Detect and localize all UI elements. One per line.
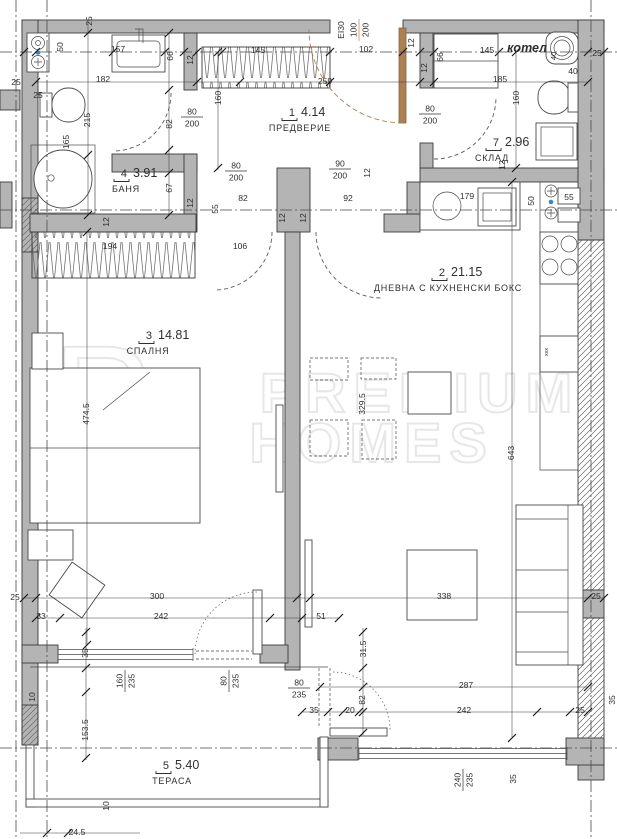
svg-text:25: 25: [10, 592, 20, 602]
svg-text:1: 1: [289, 107, 295, 119]
svg-text:12: 12: [298, 213, 308, 223]
room-label: 55.40ТЕРАСА: [152, 758, 199, 786]
door-size-label: 90200: [329, 159, 351, 181]
svg-text:242: 242: [457, 705, 472, 715]
nightstand2: [28, 530, 73, 560]
wall-partition-bedroom-living: [285, 232, 300, 670]
svg-text:235: 235: [292, 690, 307, 700]
dimension-label: 35: [607, 695, 617, 705]
dimension-label: 179: [460, 191, 475, 201]
svg-text:82: 82: [357, 695, 367, 705]
svg-text:200: 200: [229, 173, 244, 183]
storage-washer-icon: [536, 123, 577, 160]
door-size-label: 100200: [349, 19, 371, 41]
dimension-label: 66: [435, 52, 445, 62]
svg-text:20: 20: [345, 705, 355, 715]
dimension-label: 287: [459, 680, 474, 690]
svg-text:215: 215: [82, 113, 92, 128]
coffee-table: [407, 550, 477, 620]
wall-hall-south: [384, 214, 420, 232]
svg-text:300: 300: [150, 591, 165, 601]
door-size-label: 80200: [419, 104, 441, 126]
dimension-label: 182: [96, 74, 111, 84]
svg-text:92: 92: [343, 193, 353, 203]
svg-text:33: 33: [36, 611, 46, 621]
wall-bedroom-south-pier-right: [260, 645, 288, 663]
dimension-label: 92: [343, 193, 353, 203]
svg-text:106: 106: [233, 241, 248, 251]
wall-top-right: [403, 20, 604, 33]
dimension-label: 40: [568, 66, 578, 76]
door-size-label: 160235: [115, 670, 137, 692]
bedroom-wardrobe: [32, 232, 195, 278]
terrace-door-arc-bedroom: [195, 592, 257, 654]
svg-text:235: 235: [465, 773, 475, 788]
terrace-parapet-left: [26, 745, 34, 807]
dimension-label: 35: [508, 774, 518, 784]
dimension-label: 153.5: [80, 719, 90, 741]
dimension-label: 215: [82, 113, 92, 128]
svg-text:xxx: xxx: [544, 348, 550, 357]
svg-text:200: 200: [361, 23, 371, 38]
terrace-parapet-bottom: [26, 799, 328, 807]
svg-text:80: 80: [231, 161, 241, 171]
svg-text:31.5: 31.5: [358, 640, 368, 657]
svg-text:157: 157: [111, 44, 126, 54]
dimension-label: 25: [10, 592, 20, 602]
dimension-label: 102: [359, 44, 374, 54]
dimension-label: 160: [511, 91, 521, 106]
kitchen-faucet-cross-icon: [547, 187, 555, 195]
dimension-label: 24.5: [69, 827, 86, 837]
peninsula-appliance-icon: [478, 188, 516, 226]
terrace-parapet-right: [320, 737, 328, 807]
bathroom-door-arc: [113, 93, 171, 151]
svg-text:145: 145: [480, 45, 495, 55]
dimension-label: 33: [36, 611, 46, 621]
terrace-door-leaf-bedroom: [253, 590, 262, 654]
svg-text:194: 194: [103, 241, 118, 251]
dimension-label: 50: [526, 196, 536, 206]
svg-text:40: 40: [568, 66, 578, 76]
nightstand: [32, 333, 63, 369]
svg-text:80: 80: [425, 104, 435, 114]
svg-text:643: 643: [506, 446, 516, 461]
svg-text:102: 102: [359, 44, 374, 54]
sofa: [516, 505, 583, 665]
svg-text:4: 4: [121, 168, 127, 180]
dimension-label: 12: [101, 217, 111, 227]
svg-text:EI30: EI30: [336, 21, 346, 39]
svg-text:55: 55: [210, 204, 220, 214]
svg-text:СПАЛНЯ: СПАЛНЯ: [127, 346, 170, 356]
svg-text:СКЛАД: СКЛАД: [475, 153, 509, 163]
svg-text:7: 7: [493, 137, 499, 149]
svg-text:200: 200: [423, 116, 438, 126]
wall-kitchen-north: [420, 168, 604, 182]
svg-text:100: 100: [349, 23, 359, 38]
dimension-label: 10: [101, 801, 111, 811]
wall-neighbor-fragment2: [0, 182, 12, 228]
window-living: [359, 747, 567, 760]
dimension-label: 40: [549, 52, 558, 60]
stove-icon: [540, 232, 578, 284]
svg-text:287: 287: [459, 680, 474, 690]
svg-text:БАНЯ: БАНЯ: [112, 184, 140, 194]
svg-text:185: 185: [493, 74, 508, 84]
svg-text:10: 10: [101, 801, 111, 811]
room-label: 72.96СКЛАД: [475, 135, 529, 163]
room-label: 14.14ПРЕДВЕРИЕ: [269, 105, 331, 133]
dimension-label: 194: [103, 241, 118, 251]
svg-text:12: 12: [185, 198, 195, 208]
door-size-label: 80200: [225, 161, 247, 183]
svg-text:5.40: 5.40: [175, 758, 199, 772]
wall-neighbor-fragment: [0, 90, 20, 110]
dimension-label: 157: [111, 44, 126, 54]
door-size-label: 240235: [453, 769, 475, 791]
svg-text:25: 25: [84, 16, 94, 26]
dimension-label: 25: [33, 90, 43, 100]
terrace-door-leaf-living: [330, 728, 387, 736]
svg-text:51: 51: [316, 611, 326, 621]
svg-text:24.5: 24.5: [69, 827, 86, 837]
wall-hall-connector: [407, 182, 420, 214]
tv-unit-living: [305, 540, 312, 627]
svg-text:240: 240: [453, 773, 463, 788]
dimension-label: 165: [61, 135, 71, 150]
svg-text:ПРЕДВЕРИЕ: ПРЕДВЕРИЕ: [269, 123, 331, 133]
dimension-label: 35: [309, 705, 319, 715]
svg-text:182: 182: [96, 74, 111, 84]
svg-text:5: 5: [163, 760, 169, 772]
svg-text:25: 25: [575, 705, 585, 715]
svg-text:160: 160: [213, 91, 223, 106]
dimension-label: 12: [185, 198, 195, 208]
svg-text:12: 12: [277, 213, 287, 223]
dimension-label: 82: [238, 193, 248, 203]
dimension-label: 643: [506, 446, 516, 461]
svg-text:25: 25: [33, 90, 43, 100]
dimension-label: 474.5: [81, 403, 91, 425]
svg-text:2.96: 2.96: [505, 135, 529, 149]
svg-text:12: 12: [406, 38, 416, 48]
window-bedroom: [58, 648, 193, 661]
dimension-label: 338: [437, 591, 452, 601]
svg-text:90: 90: [335, 159, 345, 169]
wall-living-south-pier-right: [566, 738, 604, 765]
svg-text:338: 338: [437, 591, 452, 601]
dimension-label: 25: [11, 77, 21, 87]
wall-bedroom-south-pier-left: [22, 645, 58, 663]
dimension-label: 12: [185, 55, 195, 65]
wall-bedroom-north: [30, 214, 196, 232]
svg-text:10: 10: [27, 692, 37, 702]
svg-text:ТЕРАСА: ТЕРАСА: [152, 776, 192, 786]
svg-text:40: 40: [549, 52, 558, 60]
dimension-label: 300: [150, 591, 165, 601]
svg-text:235: 235: [127, 674, 137, 689]
svg-text:35: 35: [80, 648, 90, 658]
svg-text:474.5: 474.5: [81, 403, 91, 425]
door-size-label: 80235: [288, 678, 310, 700]
armchair: [49, 562, 105, 618]
dimension-label: 82: [357, 695, 367, 705]
svg-text:242: 242: [154, 611, 169, 621]
dimension-label: 25: [592, 48, 602, 58]
bed: [30, 368, 200, 523]
svg-text:80: 80: [187, 107, 197, 117]
entrance-door-leaf: [399, 28, 406, 123]
storage-toilet-tank-icon: [568, 83, 578, 112]
svg-text:200: 200: [185, 119, 200, 129]
shower-icon: [34, 150, 92, 208]
svg-text:145: 145: [251, 45, 266, 55]
svg-text:3.91: 3.91: [133, 166, 157, 180]
svg-text:179: 179: [460, 191, 475, 201]
door-size-label: 80235: [219, 670, 241, 692]
svg-text:ДНЕВНА С КУХНЕНСКИ БОКС: ДНЕВНА С КУХНЕНСКИ БОКС: [374, 283, 522, 293]
svg-text:12: 12: [419, 63, 429, 73]
svg-text:165: 165: [61, 135, 71, 150]
svg-text:12: 12: [101, 217, 111, 227]
svg-text:66: 66: [165, 51, 175, 61]
dimension-label: 67: [164, 183, 174, 193]
svg-text:2: 2: [439, 267, 445, 279]
svg-text:21.15: 21.15: [451, 265, 482, 279]
dimension-label: 12: [419, 63, 429, 73]
dimension-label: 25: [591, 591, 601, 601]
dimension-label: 10: [27, 692, 37, 702]
dimension-label: 259: [318, 76, 333, 86]
terrace: [26, 667, 328, 807]
wall-storage-left-lower: [420, 143, 433, 168]
floor-plan-page: P H PREMIUM HOMES: [0, 0, 617, 839]
kitchen-water-dot: [549, 200, 554, 205]
svg-text:153.5: 153.5: [80, 719, 90, 741]
dimension-label: xxx: [544, 348, 550, 357]
svg-text:82: 82: [238, 193, 248, 203]
svg-text:4.14: 4.14: [301, 105, 325, 119]
storage-door-arc: [434, 97, 496, 159]
svg-text:50: 50: [526, 196, 536, 206]
dimension-label: 35: [80, 648, 90, 658]
dimension-label: 12: [298, 213, 308, 223]
dimension-label: 12: [406, 38, 416, 48]
svg-text:67: 67: [164, 183, 174, 193]
dimension-label: 25: [575, 705, 585, 715]
svg-text:82: 82: [164, 119, 174, 129]
storage-toilet-bowl-icon: [538, 81, 570, 114]
svg-text:25: 25: [591, 591, 601, 601]
svg-text:12: 12: [185, 55, 195, 65]
kitchen-sink-size-label: 55: [564, 192, 574, 202]
dimension-label: 82: [164, 119, 174, 129]
dimension-label: 329.5: [357, 393, 367, 415]
dimension-label: 66: [165, 51, 175, 61]
svg-text:200: 200: [333, 171, 348, 181]
dimension-label: 50: [55, 42, 65, 52]
svg-text:329.5: 329.5: [357, 393, 367, 415]
dimension-label: 145: [251, 45, 266, 55]
svg-text:66: 66: [435, 52, 445, 62]
svg-text:12: 12: [362, 168, 372, 178]
dimension-label: EI30: [336, 21, 346, 39]
dimension-label: 12: [277, 213, 287, 223]
living-door-arc: [316, 232, 382, 298]
svg-text:80: 80: [294, 678, 304, 688]
svg-text:25: 25: [592, 48, 602, 58]
svg-text:259: 259: [318, 76, 333, 86]
dining-table: [408, 372, 451, 414]
svg-text:235: 235: [231, 674, 241, 689]
dimension-label: 31.5: [358, 640, 368, 657]
svg-text:14.81: 14.81: [158, 328, 189, 342]
dimension-label: 160: [213, 91, 223, 106]
svg-text:35: 35: [508, 774, 518, 784]
svg-text:3: 3: [146, 330, 152, 342]
svg-text:35: 35: [309, 705, 319, 715]
dimension-label: 25: [84, 16, 94, 26]
dimension-label: 12: [362, 168, 372, 178]
kitchen-counter-edge: [540, 182, 578, 470]
dimension-label: 242: [154, 611, 169, 621]
toilet-bowl-icon: [52, 88, 85, 122]
dimension-label: 55: [210, 204, 220, 214]
dimension-label: 106: [233, 241, 248, 251]
svg-text:160: 160: [115, 674, 125, 689]
dimension-label: 185: [493, 74, 508, 84]
wall-left-hatched-pier2: [22, 705, 38, 745]
svg-text:35: 35: [607, 695, 617, 705]
dimension-label: 145: [480, 45, 495, 55]
floor-plan-drawing: P H PREMIUM HOMES: [0, 0, 617, 839]
dimension-label: 20: [345, 705, 355, 715]
door-size-label: 80200: [181, 107, 203, 129]
tv-unit-bedroom: [276, 405, 283, 492]
wall-top-left: [22, 20, 330, 33]
dimension-label: 242: [457, 705, 472, 715]
dimension-label: 51: [316, 611, 326, 621]
svg-text:160: 160: [511, 91, 521, 106]
svg-text:80: 80: [219, 676, 229, 686]
room-label: 221.15ДНЕВНА С КУХНЕНСКИ БОКС: [374, 265, 522, 293]
svg-text:25: 25: [11, 77, 21, 87]
boiler-label: котел: [507, 41, 547, 55]
svg-text:50: 50: [55, 42, 65, 52]
